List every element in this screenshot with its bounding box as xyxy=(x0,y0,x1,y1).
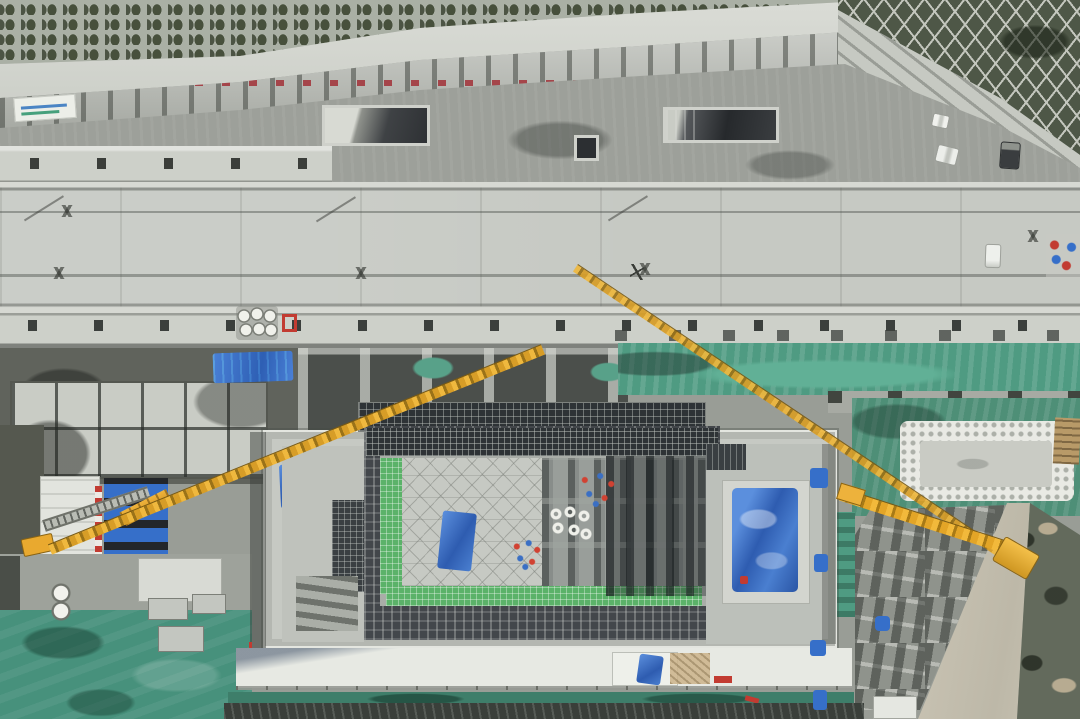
rebar-coils xyxy=(548,506,596,544)
deck-access-hatch xyxy=(663,107,779,143)
foundation-cell-grid xyxy=(10,381,268,479)
white-van xyxy=(985,244,1002,269)
concrete-block xyxy=(158,626,204,652)
straw-matting xyxy=(670,653,710,684)
works-shadow xyxy=(0,556,20,616)
rebar-mat-east xyxy=(706,444,746,470)
storage-tanks xyxy=(46,582,76,624)
scrub-strip xyxy=(224,703,864,719)
joint-brace xyxy=(1020,230,1046,242)
dust-netting-field xyxy=(0,610,252,719)
blue-tarp xyxy=(814,554,828,572)
worker-cluster xyxy=(576,470,620,510)
red-frame-marker xyxy=(282,314,297,332)
south-apron xyxy=(236,648,852,688)
deck-expansion-joint xyxy=(0,274,1080,277)
netted-trench xyxy=(618,343,1080,395)
joint-brace xyxy=(46,267,72,279)
survey-instrument xyxy=(630,264,644,280)
rebar-mat-top xyxy=(366,428,718,456)
blue-tarp xyxy=(636,653,664,685)
blue-tarp xyxy=(437,510,477,571)
station-roof-deck xyxy=(0,182,1080,312)
blue-tarp xyxy=(213,351,294,384)
site-shed xyxy=(873,696,917,719)
blue-tarp xyxy=(875,616,890,631)
walkway-railing xyxy=(236,686,852,690)
concrete-pipe-stack xyxy=(236,306,278,340)
deck-access-hatch xyxy=(322,105,430,146)
deck-expansion-joint xyxy=(0,211,1080,213)
safety-mesh-strip xyxy=(380,458,402,594)
netting-strip xyxy=(835,512,855,617)
timber-stack xyxy=(1053,417,1080,464)
aerial-photo xyxy=(0,0,1080,719)
small-access-hatch xyxy=(574,135,599,161)
red-marker xyxy=(714,676,732,683)
blue-tarp xyxy=(813,690,827,710)
blue-tarp xyxy=(810,640,826,656)
red-blue-materials xyxy=(1046,234,1080,278)
material-stacks xyxy=(296,576,358,631)
joint-brace xyxy=(348,267,374,279)
south-ledge-drains xyxy=(0,308,1080,348)
blue-tarp xyxy=(810,468,828,488)
red-marker xyxy=(740,576,748,584)
construction-banner xyxy=(13,94,77,122)
pit-floor xyxy=(920,441,1052,487)
rebar-bundles xyxy=(606,456,706,596)
concrete-block xyxy=(192,594,226,614)
joint-brace xyxy=(54,205,80,217)
north-ledge-drains xyxy=(0,146,332,184)
concrete-block xyxy=(148,598,188,620)
worker-cluster xyxy=(510,538,544,572)
dark-truck xyxy=(999,141,1021,169)
